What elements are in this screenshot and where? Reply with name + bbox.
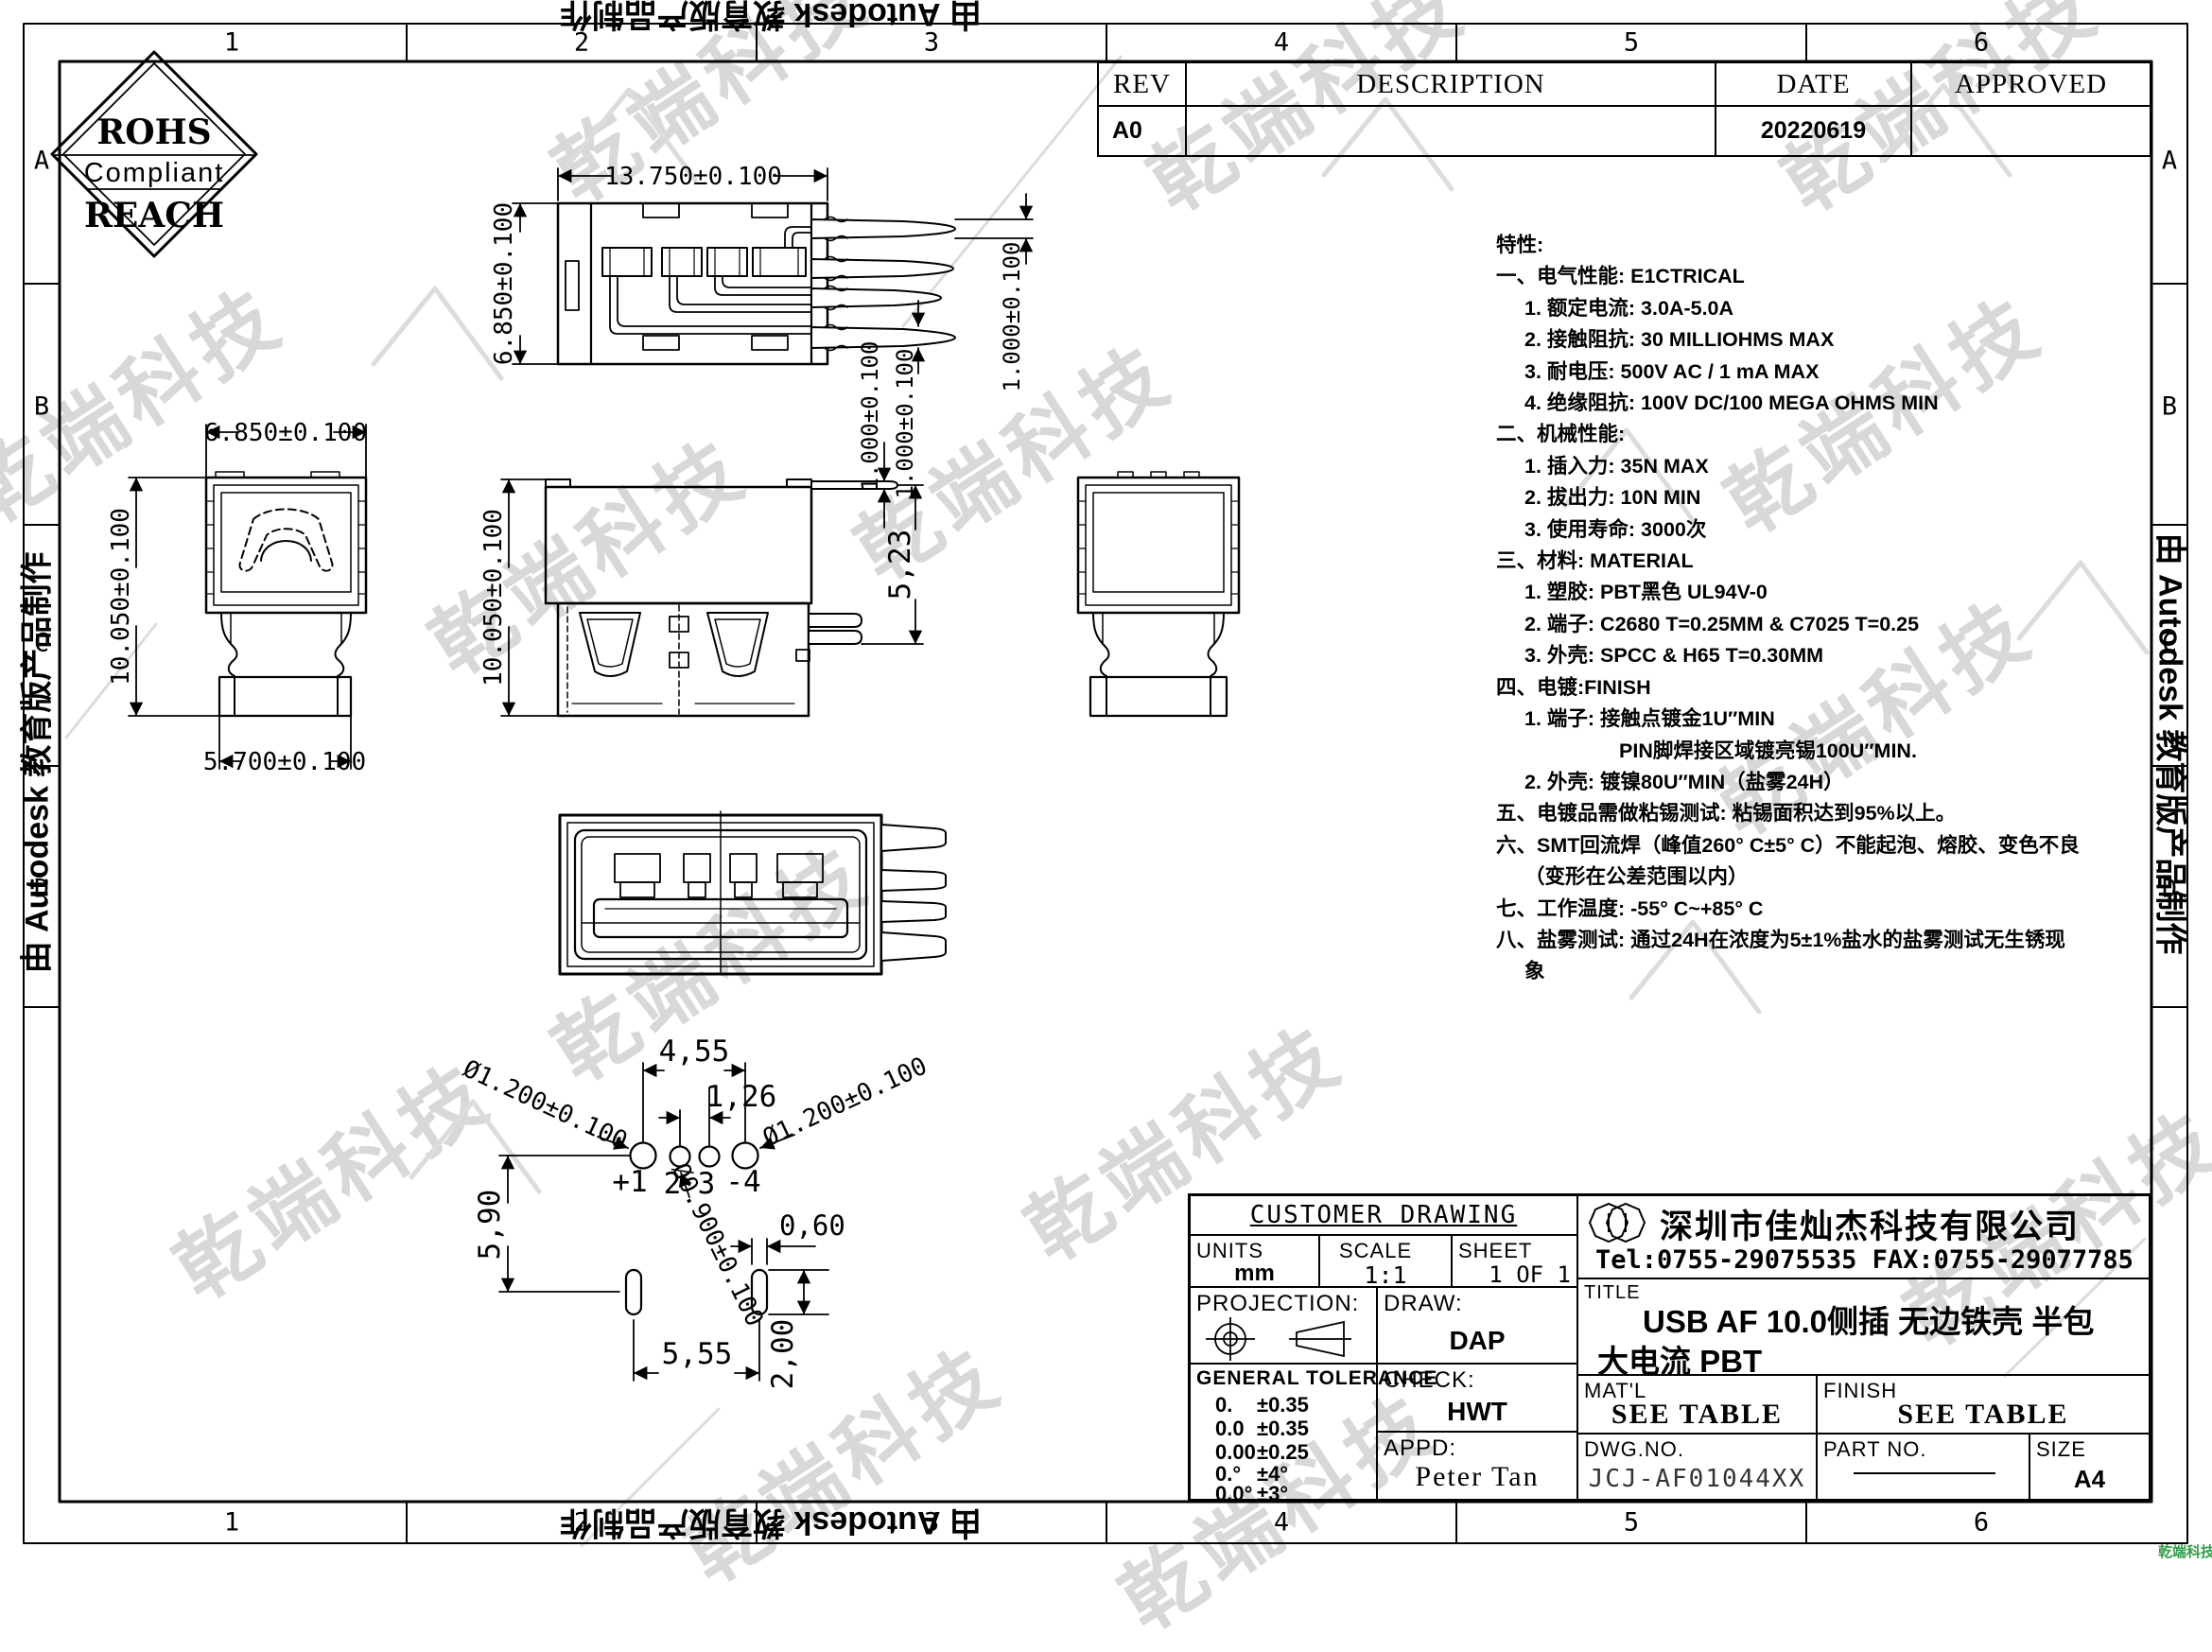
top-view-dimensions: 13.750±0.100 6.850±0.100 — [490, 163, 827, 365]
spec-line: 1. 额定电流: 3.0A-5.0A — [1496, 293, 2177, 324]
rev-header: REV — [1099, 63, 1187, 107]
tol-range: 0.0 — [1191, 1417, 1257, 1440]
face-view-contacts — [615, 854, 823, 897]
spec-list: 特性: 一、电气性能: E1CTRICAL 1. 额定电流: 3.0A-5.0A… — [1496, 230, 2177, 988]
dim-side-pin-drop: 5,23 — [883, 530, 917, 600]
spec-line: 2. 拔出力: 10N MIN — [1496, 482, 2177, 513]
zone-col-4: 4 — [1274, 28, 1289, 58]
company-contact: Tel:0755-29075535 FAX:0755-29077785 — [1595, 1245, 2134, 1275]
reach-label: REACH — [84, 196, 224, 235]
finish-value: SEE TABLE — [1818, 1399, 2149, 1431]
description-value — [1187, 107, 1716, 155]
tol-value: ±4° — [1257, 1464, 1288, 1484]
zone-col-2: 2 — [574, 28, 589, 58]
spec-line: 四、电镀:FINISH — [1496, 672, 2177, 704]
spec-line: 1. 塑胶: PBT黑色 UL94V-0 — [1496, 577, 2177, 608]
zone-col-6: 6 — [1974, 1508, 1989, 1538]
face-view-drawing — [560, 811, 946, 974]
pin-label-4: -4 — [725, 1165, 760, 1199]
dim-front-base: 5.700±0.100 — [203, 748, 366, 776]
check-label: CHECK: — [1384, 1367, 1475, 1394]
zone-col-4: 4 — [1274, 1508, 1289, 1538]
tol-value: ±3° — [1257, 1484, 1288, 1504]
spec-line: 三、材料: MATERIAL — [1496, 546, 2177, 577]
scale-value: 1:1 — [1320, 1261, 1451, 1289]
dwg-no-value: JCJ-AF01044XX — [1578, 1465, 1816, 1493]
dim-pin-width-a: 1.000±0.100 — [999, 242, 1025, 392]
matl-value: SEE TABLE — [1578, 1399, 1816, 1431]
dim-side-pin-width: 1.000±0.100 — [857, 341, 883, 492]
dim-side-height: 10.050±0.100 — [479, 509, 508, 687]
tol-range: 0.0° — [1191, 1484, 1257, 1504]
customer-drawing-title: CUSTOMER DRAWING — [1250, 1201, 1517, 1229]
tol-value: ±0.25 — [1257, 1440, 1309, 1464]
check-value: HWT — [1378, 1397, 1576, 1427]
spec-line: 六、SMT回流焊（峰值260° C±5° C）不能起泡、熔胶、变色不良 — [1496, 830, 2177, 861]
tol-range: 0.° — [1191, 1464, 1257, 1484]
top-view-pins — [811, 219, 955, 348]
part-no-blank — [1854, 1472, 1995, 1474]
spec-line: 1. 端子: 接触点镀金1U″MIN — [1496, 704, 2177, 735]
description-header: DESCRIPTION — [1187, 63, 1716, 107]
dim-slot-height: 2,00 — [766, 1319, 800, 1390]
zone-col-6: 6 — [1974, 28, 1989, 58]
projection-symbol-icon — [1194, 1314, 1374, 1364]
scale-label: SCALE — [1339, 1239, 1412, 1263]
spec-line: 二、机械性能: — [1496, 419, 2177, 450]
zone-row-c: C — [34, 629, 49, 658]
zone-row-d: D — [34, 875, 49, 904]
units-value: mm — [1191, 1261, 1318, 1287]
zone-col-3: 3 — [924, 1508, 939, 1538]
zone-row-b: B — [34, 392, 49, 422]
compliant-label: Compliant — [84, 158, 225, 188]
dim-vertical: 5,90 — [473, 1190, 507, 1261]
appd-value: Peter Tan — [1378, 1461, 1576, 1493]
spec-line: 象 — [1496, 956, 2177, 987]
face-view-pins — [881, 825, 946, 961]
title-label: TITLE — [1584, 1282, 1640, 1304]
sheet-value: 1 OF 1 — [1453, 1261, 1576, 1288]
dim-slot-width: 0,60 — [779, 1209, 845, 1242]
approved-header: APPROVED — [1912, 63, 2150, 107]
zone-col-5: 5 — [1624, 28, 1639, 58]
dim-front-width: 6.850±0.100 — [204, 419, 367, 447]
title-block: CUSTOMER DRAWING UNITS mm SCALE 1:1 SHEE… — [1188, 1193, 2151, 1502]
tol-range: 0.00 — [1191, 1440, 1257, 1464]
rohs-label: ROHS — [96, 113, 211, 152]
approved-value — [1912, 107, 2150, 155]
dim-pin-dia-right: Ø1.200±0.100 — [758, 1052, 932, 1153]
zone-col-1: 1 — [224, 1508, 239, 1538]
dwg-no-label: DWG.NO. — [1584, 1437, 1684, 1462]
revision-table: REV DESCRIPTION DATE APPROVED A0 2022061… — [1097, 61, 2151, 157]
part-title-line1: USB AF 10.0侧插 无边铁壳 半包 — [1643, 1296, 2094, 1342]
spec-line: 1. 插入力: 35N MAX — [1496, 451, 2177, 482]
spec-line: 2. 接触阻抗: 30 MILLIOHMS MAX — [1496, 324, 2177, 356]
zone-col-5: 5 — [1624, 1508, 1639, 1538]
spec-line: 八、盐雾测试: 通过24H在浓度为5±1%盐水的盐雾测试无生锈现 — [1496, 925, 2177, 956]
top-view-contact-routes — [610, 227, 811, 334]
tol-value: ±0.35 — [1257, 1393, 1309, 1417]
zone-row-a: A — [2162, 147, 2177, 176]
spec-line: 3. 使用寿命: 3000次 — [1496, 514, 2177, 546]
draw-label: DRAW: — [1384, 1291, 1463, 1317]
drawing-sheet: { "watermark": { "text": "乾端科技", "corner… — [0, 0, 2212, 1564]
spec-line: 一、电气性能: E1CTRICAL — [1496, 261, 2177, 292]
spec-line: 五、电镀品需做粘锡测试: 粘锡面积达到95%以上。 — [1496, 798, 2177, 829]
dim-front-height: 10.050±0.100 — [107, 508, 135, 686]
size-value: A4 — [2030, 1465, 2149, 1494]
spec-line: 七、工作温度: -55° C~+85° C — [1496, 894, 2177, 925]
zone-row-a: A — [34, 147, 49, 176]
part-no-label: PART NO. — [1823, 1437, 1926, 1462]
dim-slot-pitch: 5,55 — [662, 1337, 733, 1371]
zone-col-3: 3 — [924, 28, 939, 58]
date-value: 20220619 — [1716, 107, 1912, 155]
size-label: SIZE — [2036, 1437, 2086, 1462]
autodesk-watermark-top: 由 Autodesk 教育版产品制作 — [392, 0, 1149, 41]
spec-line: 3. 耐电压: 500V AC / 1 mA MAX — [1496, 356, 2177, 388]
spec-line: 2. 端子: C2680 T=0.25MM & C7025 T=0.25 — [1496, 609, 2177, 640]
dim-pin-width-b: 1.000±0.100 — [892, 349, 918, 499]
part-title-line2: 大电流 PBT — [1597, 1336, 1762, 1382]
autodesk-watermark-left: 由 Autodesk 教育版产品制作 — [11, 385, 58, 1141]
spec-line: 3. 外壳: SPCC & H65 T=0.30MM — [1496, 640, 2177, 671]
spec-line: 特性: — [1496, 230, 2177, 261]
rev-value: A0 — [1099, 107, 1187, 155]
dim-top-width: 13.750±0.100 — [604, 163, 782, 191]
front-view-drawing: 6.850±0.100 5.700±0.100 10.050±0.100 — [107, 419, 367, 776]
corner-logo-watermark: 乾端科技 — [2158, 1541, 2212, 1561]
zone-col-1: 1 — [224, 28, 239, 58]
pin-layout-drawing: +1 2 3 -4 4,55 1,26 Ø1.200±0.100 Ø1.200±… — [459, 1035, 932, 1389]
spec-line: 2. 外壳: 镀镍80U″MIN（盐雾24H） — [1496, 767, 2177, 798]
pin-label-1: +1 — [612, 1165, 647, 1199]
spec-line: PIN脚焊接区域镀亮锡100U″MIN. — [1496, 736, 2177, 767]
dim-top-height: 6.850±0.100 — [490, 202, 518, 365]
spec-line: （变形在公差范围以内） — [1496, 861, 2177, 893]
side-view-drawing: 10.050±0.100 5,23 1.000±0.100 — [479, 341, 923, 716]
company-name: 深圳市佳灿杰科技有限公司 — [1660, 1200, 2080, 1248]
top-view-drawing: 13.750±0.100 6.850±0.100 — [490, 163, 1033, 498]
tol-value: ±0.35 — [1257, 1417, 1309, 1440]
tol-range: 0. — [1191, 1393, 1257, 1417]
projection-label: PROJECTION: — [1196, 1291, 1359, 1317]
rohs-reach-badge: ROHS Compliant REACH — [52, 52, 256, 256]
right-view-drawing — [1078, 472, 1239, 716]
zone-col-2: 2 — [574, 1508, 589, 1538]
draw-value: DAP — [1378, 1326, 1576, 1356]
dim-outer-pitch: 4,55 — [659, 1035, 730, 1069]
date-header: DATE — [1716, 63, 1912, 107]
dim-inner-pitch: 1,26 — [706, 1080, 777, 1114]
autodesk-watermark-bottom: 由 Autodesk 教育版产品制作 — [392, 1503, 1149, 1549]
sheet-label: SHEET — [1458, 1239, 1532, 1263]
appd-label: APPD: — [1384, 1435, 1456, 1462]
spec-line: 4. 绝缘阻抗: 100V DC/100 MEGA OHMS MIN — [1496, 388, 2177, 419]
